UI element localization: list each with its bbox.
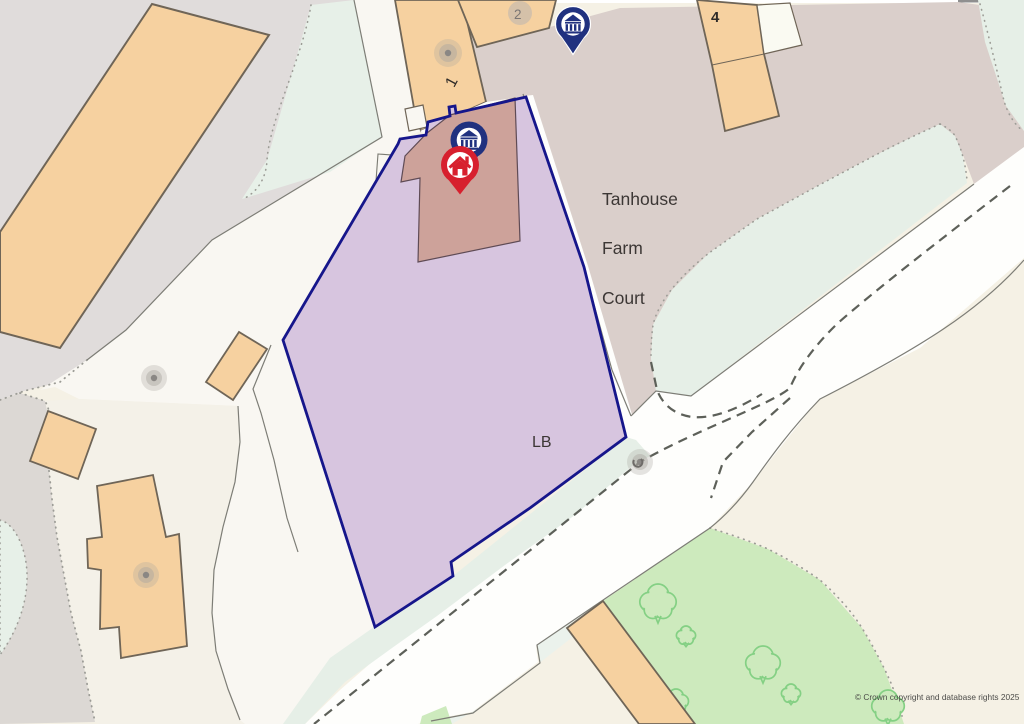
svg-text:© Crown copyright and database: © Crown copyright and database rights 20… — [855, 692, 1020, 702]
svg-text:Farm: Farm — [602, 238, 643, 258]
svg-text:4: 4 — [711, 9, 720, 26]
svg-text:Tanhouse: Tanhouse — [602, 189, 678, 209]
svg-text:2: 2 — [514, 7, 522, 22]
svg-text:Court: Court — [602, 288, 645, 308]
svg-text:LB: LB — [532, 434, 552, 451]
